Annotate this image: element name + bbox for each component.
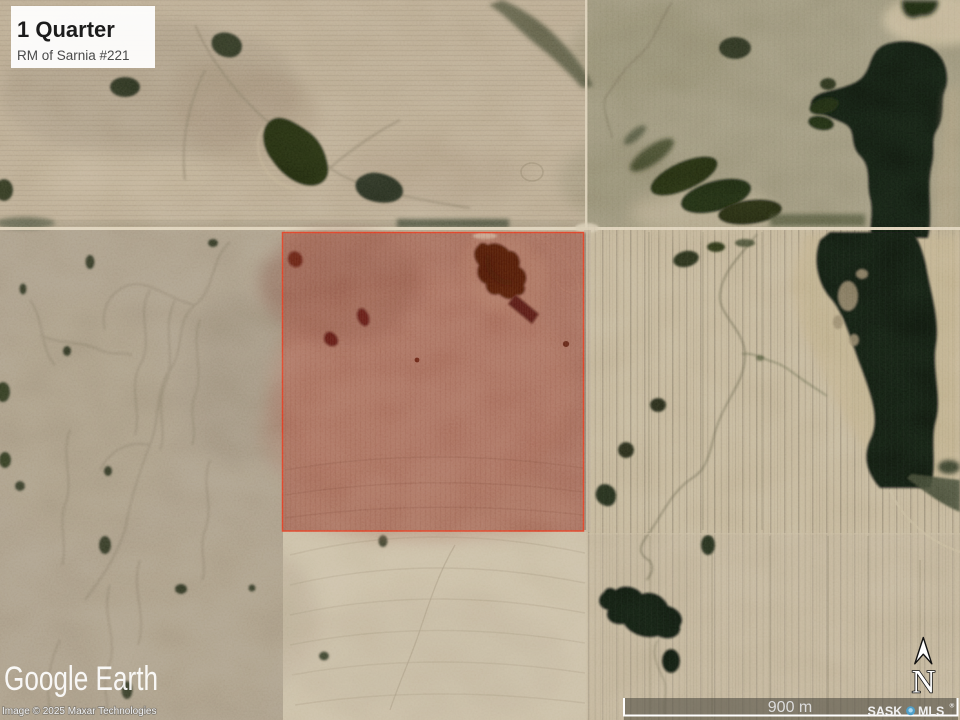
svg-text:®: ®: [950, 702, 955, 710]
svg-text:1 Quarter: 1 Quarter: [17, 17, 115, 42]
svg-text:Image © 2025 Maxar Technologie: Image © 2025 Maxar Technologies: [2, 706, 157, 717]
svg-text:SASK: SASK: [868, 704, 903, 718]
svg-text:900 m: 900 m: [768, 699, 812, 716]
svg-text:Google Earth: Google Earth: [4, 660, 158, 698]
svg-text:MLS: MLS: [918, 704, 944, 718]
svg-text:RM of Sarnia #221: RM of Sarnia #221: [17, 48, 130, 63]
svg-text:N: N: [912, 665, 936, 701]
